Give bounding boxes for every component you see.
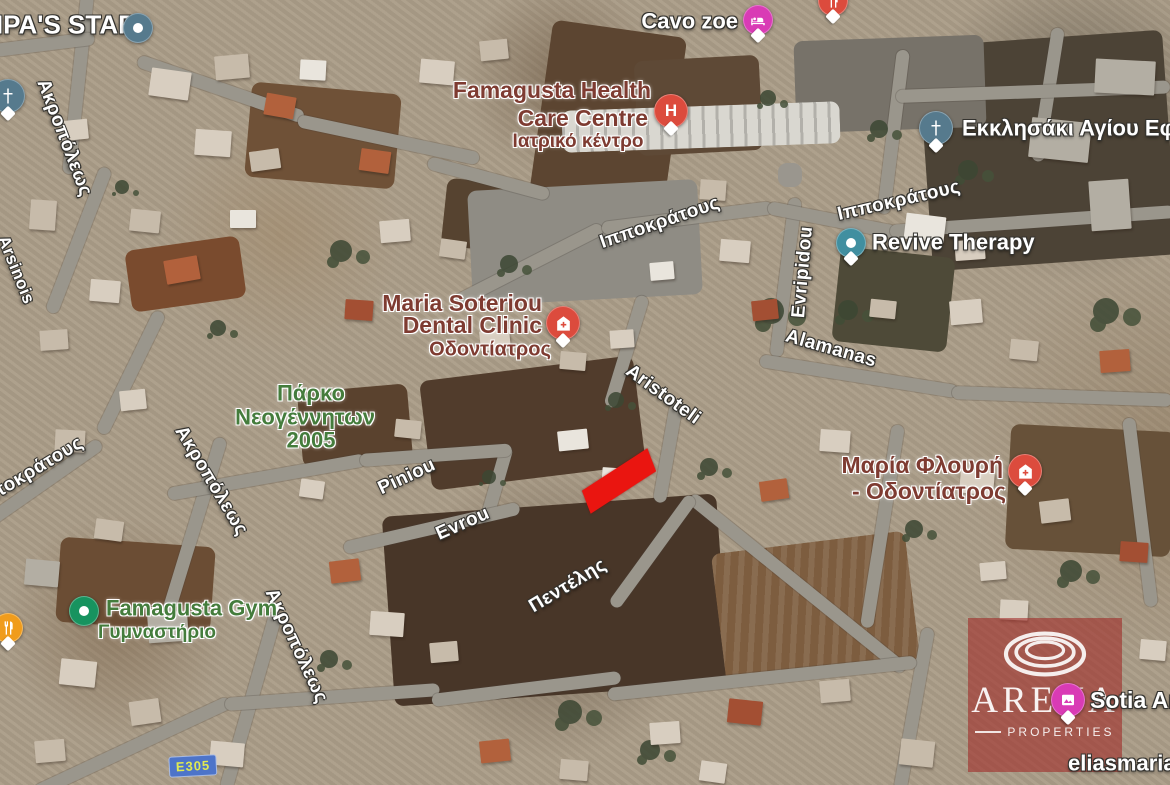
tree-cluster (608, 392, 624, 408)
building (34, 739, 66, 764)
building (479, 738, 511, 763)
poi-label-famagusta-gym[interactable]: Famagusta Gym (106, 596, 277, 619)
building (559, 759, 589, 781)
building (359, 148, 392, 174)
satellite-map[interactable]: Ακροπόλεως Ακροπόλεως Ακροπόλεως Arsinoi… (0, 0, 1170, 785)
tree-cluster (558, 700, 582, 724)
tree-cluster (1093, 298, 1119, 324)
church-marker-left[interactable] (0, 79, 25, 113)
building (230, 210, 256, 228)
building (29, 199, 57, 231)
field-patch (778, 163, 802, 187)
poi-label-maria-flouri-1[interactable]: Μαρία Φλουρή (841, 453, 1003, 477)
building (148, 67, 192, 100)
restaurant-marker-left[interactable] (0, 613, 23, 643)
dental-clinic-marker[interactable] (546, 306, 580, 340)
bed-icon (749, 11, 767, 29)
tree-cluster (330, 240, 352, 262)
building (24, 559, 60, 588)
building (128, 698, 161, 726)
dot-icon (133, 23, 143, 33)
building (759, 478, 790, 502)
tree-cluster (905, 520, 923, 538)
building (479, 39, 509, 62)
divider (975, 731, 1001, 733)
poi-label-maria-soteriou-2[interactable]: Dental Clinic (403, 313, 542, 337)
medical-house-icon (1016, 462, 1035, 481)
hospital-h-icon: H (665, 101, 677, 121)
building (369, 611, 405, 637)
revive-therapy-marker[interactable] (836, 228, 866, 258)
arena-logo-icon (997, 628, 1093, 680)
poi-label-maria-soteriou-sub: Οδοντίατρος (429, 340, 551, 361)
poi-label-cavo-zoe[interactable]: Cavo zoe (641, 9, 738, 32)
dentist-marker-right[interactable] (1008, 454, 1042, 488)
road-segment (952, 386, 1170, 407)
e305-route-badge: E305 (168, 754, 217, 778)
poi-label-parko-2: Νεογέννητων (235, 405, 375, 428)
building (194, 129, 232, 157)
building (751, 299, 779, 322)
building (609, 329, 634, 349)
building (819, 429, 850, 453)
building (94, 518, 125, 542)
building (1009, 339, 1039, 362)
tree-cluster (760, 90, 776, 106)
fork-knife-icon (0, 620, 16, 636)
poi-label-famagusta-health-2[interactable]: Care Centre (518, 106, 648, 130)
building (394, 419, 422, 440)
building (899, 738, 936, 767)
poi-label-revive-therapy[interactable]: Revive Therapy (872, 230, 1035, 253)
building (869, 299, 897, 320)
poi-label-famagusta-health-sub: Ιατρικό κέντρο (513, 132, 644, 152)
building (1119, 541, 1148, 563)
poi-label-maria-flouri-2[interactable]: - Οδοντίατρος (852, 479, 1006, 503)
cavo-zoe-hotel-marker[interactable] (743, 5, 773, 35)
building (1099, 349, 1130, 373)
tree-cluster (210, 320, 226, 336)
medical-house-icon (554, 314, 573, 333)
building (129, 208, 161, 233)
building (344, 299, 373, 321)
building (819, 679, 851, 704)
tree-cluster (1060, 560, 1082, 582)
building (979, 561, 1006, 581)
building (699, 760, 728, 783)
hospital-marker[interactable]: H (654, 94, 688, 128)
dot-icon (79, 606, 89, 616)
road-segment (95, 309, 166, 436)
building (419, 59, 455, 86)
poi-label-ekklisaki[interactable]: Εκκλησάκι Αγίου Εφρα (962, 116, 1170, 139)
building (719, 239, 751, 264)
poi-label-eliasmaria[interactable]: eliasmaria (1068, 751, 1170, 774)
watermark-sub-text: PROPERTIES (975, 725, 1114, 739)
poi-label-sotia-art[interactable]: Sotia Art (1090, 688, 1170, 712)
art-frame-icon (1059, 691, 1077, 709)
building (727, 698, 763, 725)
sotia-art-marker[interactable] (1051, 683, 1085, 717)
building (649, 261, 674, 281)
poi-label-nipas-star[interactable]: NIPA'S STAR (0, 11, 137, 38)
nipas-star-marker[interactable] (123, 13, 153, 43)
poi-label-famagusta-health-1[interactable]: Famagusta Health (453, 78, 651, 102)
building (379, 219, 411, 244)
building (1039, 498, 1071, 523)
building (299, 478, 325, 499)
building (559, 351, 586, 371)
restaurant-marker-top[interactable] (818, 0, 848, 16)
building (59, 658, 98, 688)
tree-cluster (700, 458, 718, 476)
building (557, 428, 589, 451)
tree-cluster (500, 255, 518, 273)
poi-label-parko-1: Πάρκο (277, 381, 345, 404)
building (299, 59, 326, 80)
tree-cluster (838, 300, 858, 320)
building (1094, 58, 1156, 95)
building (119, 389, 147, 412)
building (649, 721, 680, 745)
famagusta-gym-marker[interactable] (69, 596, 99, 626)
dot-icon (846, 238, 856, 248)
building (249, 148, 281, 172)
church-cross-icon (927, 119, 945, 137)
building (439, 238, 467, 259)
tree-cluster (870, 120, 888, 138)
building (89, 279, 121, 304)
building (214, 54, 250, 81)
tree-cluster (482, 470, 496, 484)
building (1088, 179, 1131, 232)
building (429, 641, 459, 663)
building (39, 329, 68, 351)
fork-knife-icon (825, 0, 841, 9)
road-label-arsinois: Arsinois (0, 233, 38, 306)
chapel-marker[interactable] (919, 111, 953, 145)
building (949, 299, 983, 326)
poi-label-parko-3: 2005 (287, 428, 336, 451)
poi-label-famagusta-gym-sub: Γυμναστήριο (98, 623, 216, 643)
building (1139, 639, 1167, 661)
church-cross-icon (0, 87, 17, 105)
tree-cluster (115, 180, 129, 194)
tree-cluster (320, 650, 338, 668)
tree-cluster (958, 160, 978, 180)
building (329, 558, 361, 583)
